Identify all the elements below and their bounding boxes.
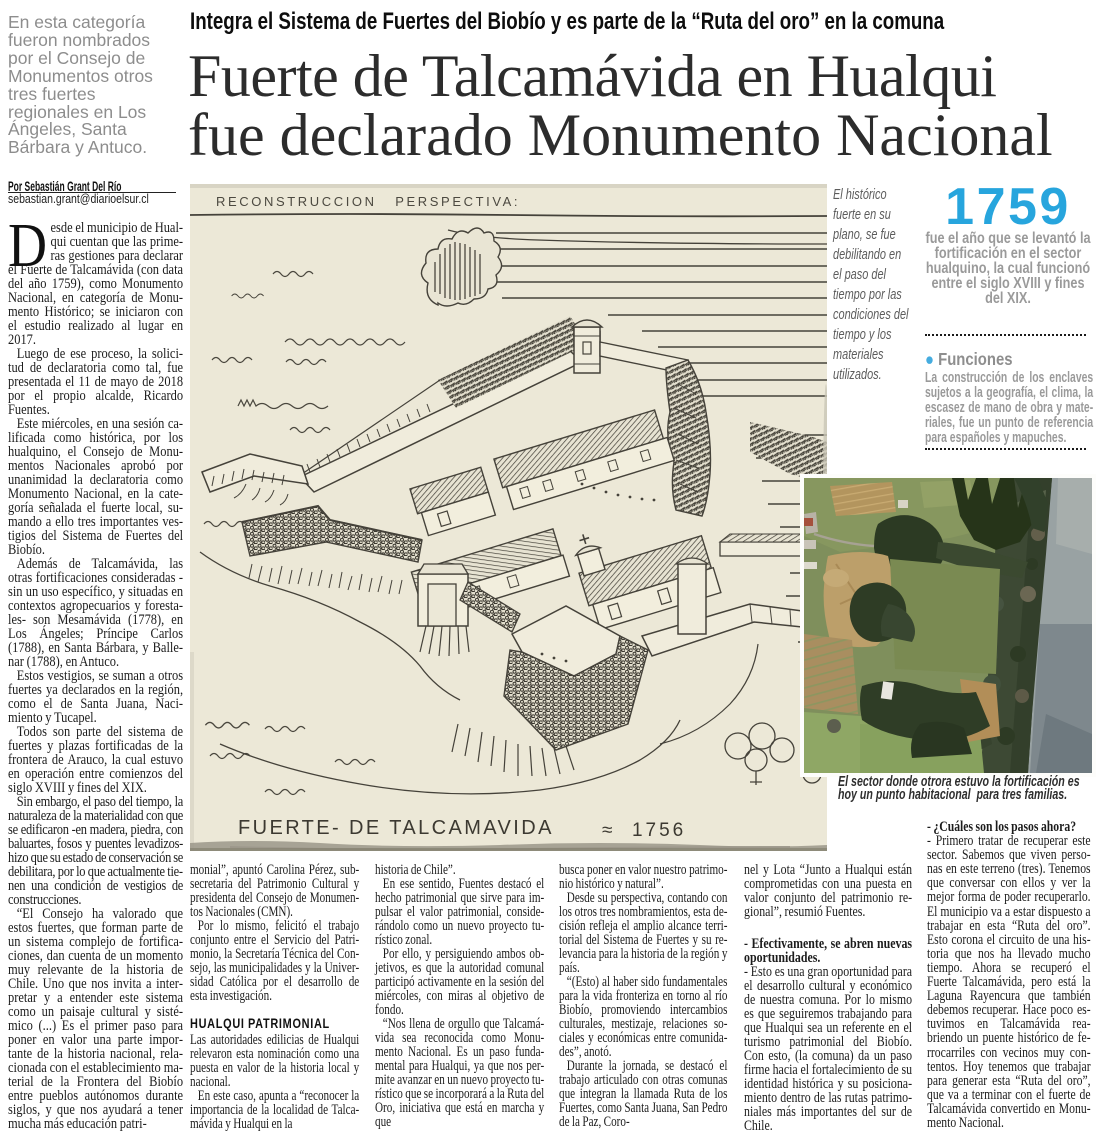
svg-text:RECONSTRUCCION PERSPECTIVA:: RECONSTRUCCION PERSPECTIVA: bbox=[216, 194, 520, 209]
svg-text:≈ 1756: ≈ 1756 bbox=[602, 820, 686, 841]
svg-text:FUERTE- DE TALCAMAVIDA: FUERTE- DE TALCAMAVIDA bbox=[238, 817, 554, 839]
